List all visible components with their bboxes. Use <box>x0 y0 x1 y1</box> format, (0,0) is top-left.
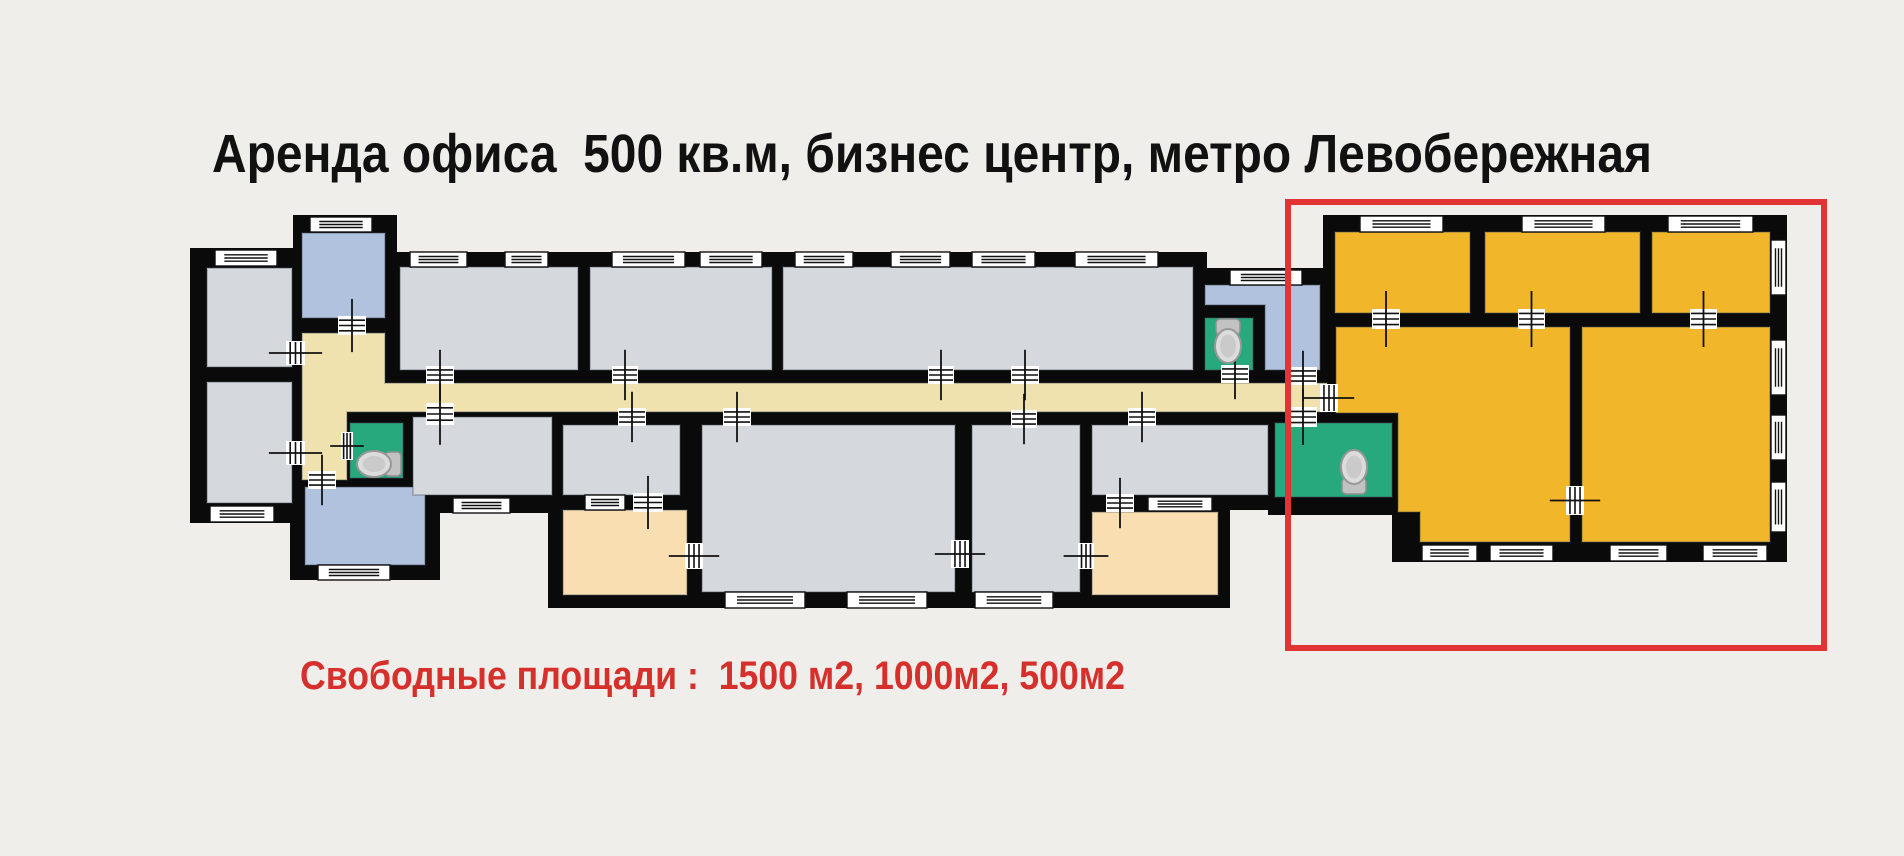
window-symbol <box>612 252 685 267</box>
window-symbol <box>310 217 372 232</box>
window-symbol <box>410 252 467 267</box>
room-yellow-1 <box>1335 232 1470 313</box>
room-blue-top <box>302 233 385 318</box>
window-symbol <box>847 592 927 608</box>
window-symbol <box>1360 216 1443 232</box>
window-symbol <box>1771 340 1786 395</box>
room-top-3 <box>783 267 1193 370</box>
window-symbol <box>1075 252 1158 267</box>
toilet-icon <box>357 451 401 477</box>
window-symbol <box>585 495 625 510</box>
room-yellow-5 <box>1582 327 1770 542</box>
room-bottom-4 <box>972 425 1080 592</box>
window-symbol <box>453 498 510 513</box>
room-bottom-1 <box>413 417 552 495</box>
available-space-note: Свободные площади : 1500 м2, 1000м2, 500… <box>300 654 1125 698</box>
floor-plan: Аренда офиса 500 кв.м, бизнес центр, мет… <box>0 0 1904 851</box>
room-top-2 <box>590 267 772 370</box>
page-background: { "title": "Аренда офиса 500 кв.м, бизне… <box>0 0 1904 851</box>
toilet-icon <box>1341 450 1367 494</box>
room-bottom-3 <box>702 425 955 592</box>
window-symbol <box>795 252 853 267</box>
room-blue-bottom <box>305 487 425 565</box>
room-top-1 <box>400 267 578 370</box>
toilet-icon <box>1215 319 1241 363</box>
room-yellow-2 <box>1485 232 1640 313</box>
window-symbol <box>700 252 762 267</box>
window-symbol <box>972 252 1035 267</box>
room-bottom-2 <box>563 425 680 495</box>
room-cream-2 <box>1092 512 1218 595</box>
window-symbol <box>1422 545 1477 561</box>
window-symbol <box>1148 497 1212 511</box>
window-symbol <box>725 592 805 608</box>
window-symbol <box>505 252 548 267</box>
room-bottom-5 <box>1092 425 1268 495</box>
window-symbol <box>1610 545 1667 561</box>
window-symbol <box>1668 216 1753 232</box>
window-symbol <box>215 250 277 266</box>
wc-right <box>1275 423 1392 497</box>
window-symbol <box>975 592 1053 608</box>
window-symbol <box>318 565 390 580</box>
window-symbol <box>1771 482 1786 532</box>
window-symbol <box>1771 415 1786 460</box>
window-symbol <box>1771 240 1786 295</box>
room-left-bottom <box>207 382 292 503</box>
room-yellow-3 <box>1652 232 1770 313</box>
window-symbol <box>1703 545 1767 561</box>
room-cream-1 <box>563 510 687 595</box>
page-title: Аренда офиса 500 кв.м, бизнес центр, мет… <box>212 124 1652 184</box>
window-symbol <box>210 506 274 522</box>
window-symbol <box>1490 545 1553 561</box>
window-symbol <box>1230 270 1302 285</box>
window-symbol <box>891 252 950 267</box>
window-symbol <box>1522 216 1605 232</box>
